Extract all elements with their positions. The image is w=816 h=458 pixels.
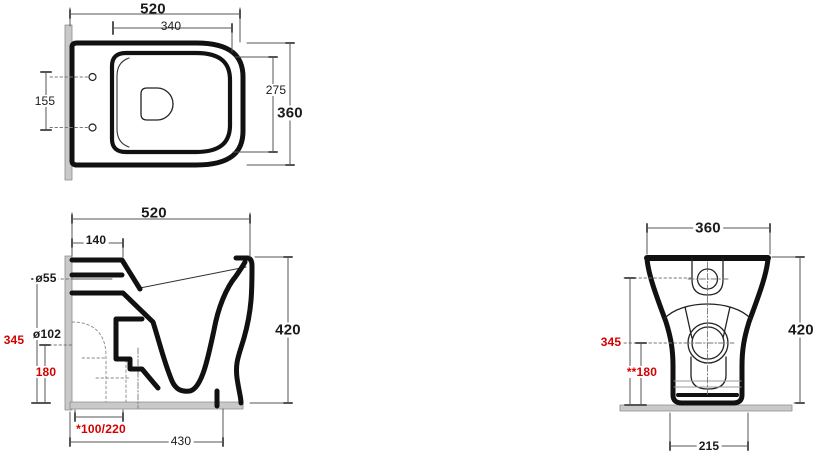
dim-label-front-overall-height: 420 xyxy=(786,323,816,338)
drain-hole xyxy=(141,88,173,120)
technical-drawing: 520 340 275 360 155 520 140 ø55 345 ø102… xyxy=(0,0,816,458)
dim-label-front-base-width: 215 xyxy=(697,440,722,452)
dim-label-side-inlet-diameter: ø55 xyxy=(33,272,58,284)
fixing-hole-bottom xyxy=(89,124,96,131)
dim-label-plan-lid-length: 340 xyxy=(161,20,182,32)
plan-view xyxy=(41,8,294,180)
dim-label-side-overall-length: 520 xyxy=(141,206,167,221)
seat-section-bars xyxy=(72,260,140,289)
dim-label-front-inlet-height: 345 xyxy=(601,336,622,348)
dim-label-side-outlet-diameter: ø102 xyxy=(31,328,63,340)
dim-label-side-inlet-height: 345 xyxy=(4,334,25,346)
s-trap-dotted-lines xyxy=(72,322,130,402)
bowl-section-outline xyxy=(72,262,245,391)
dim-label-front-overall-width: 360 xyxy=(693,221,723,236)
back-outer-outline xyxy=(236,258,252,403)
dim-label-side-base-depth: 430 xyxy=(169,435,194,447)
fixing-hole-top xyxy=(89,74,96,81)
dim-label-plan-bowl-width: 275 xyxy=(264,84,289,96)
dim-label-plan-overall-width: 360 xyxy=(275,106,305,121)
dim-label-front-outlet-height: **180 xyxy=(625,366,659,378)
dim-label-plan-overall-length: 520 xyxy=(140,2,166,17)
dim-label-side-overall-height: 420 xyxy=(273,323,303,338)
dim-label-side-outlet-height: 180 xyxy=(34,366,59,378)
front-view xyxy=(620,224,804,450)
side-view xyxy=(32,213,292,446)
dim-label-plan-hole-spacing: 155 xyxy=(33,95,58,107)
dim-label-side-seat-offset: 140 xyxy=(84,234,109,246)
dim-label-side-outlet-range: *100/220 xyxy=(76,423,126,435)
